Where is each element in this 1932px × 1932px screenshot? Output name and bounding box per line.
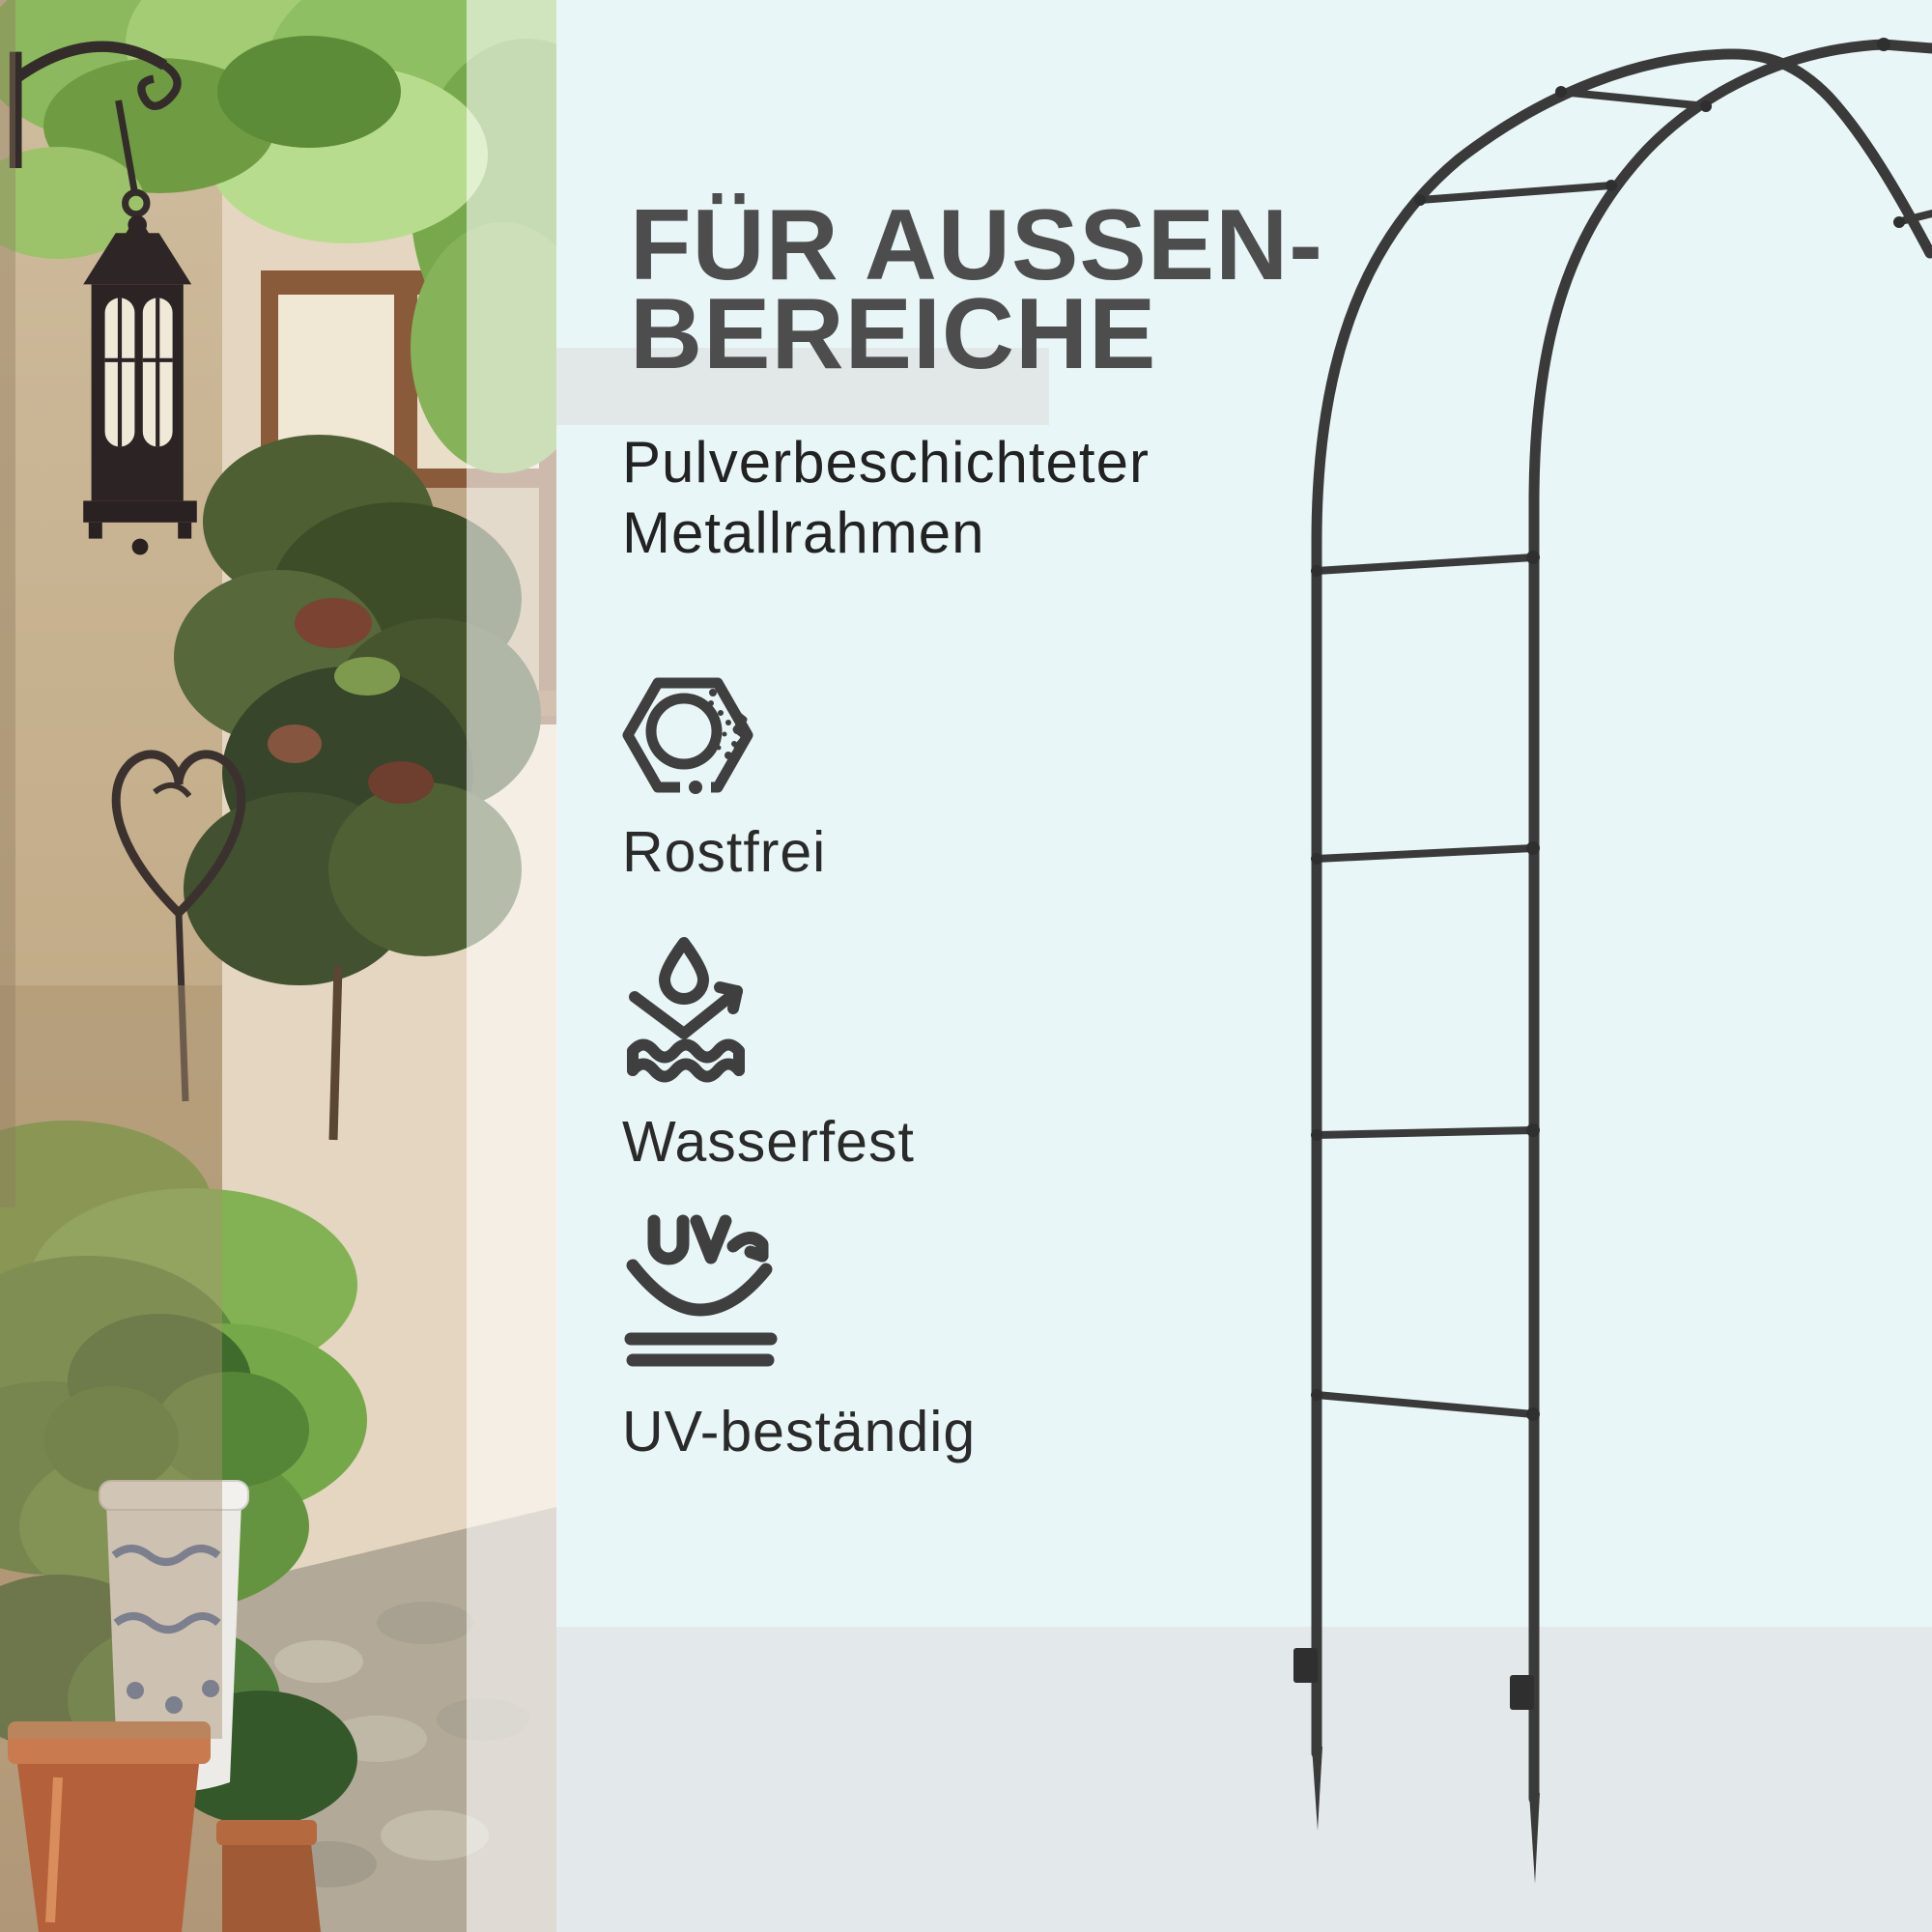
arch-rung [1317,557,1533,571]
photo-fade-overlay [467,0,556,1932]
garden-photo [0,0,556,1932]
arch-rung [1420,185,1611,200]
leg-tip [1529,1793,1540,1884]
garden-arch-product [556,0,1932,1932]
arch-rung [1317,1395,1533,1414]
leg-tip [1312,1747,1322,1831]
arch-joints [1311,38,1905,1421]
ground-anchor-tab [1293,1648,1318,1683]
ground-anchor-tab [1510,1675,1534,1710]
arch-rung [1317,848,1533,859]
arch-rung [1317,1130,1533,1135]
arch-back-tube [1534,44,1932,1799]
arch-front-tube [1317,54,1930,1753]
arch-rung [1561,92,1706,106]
